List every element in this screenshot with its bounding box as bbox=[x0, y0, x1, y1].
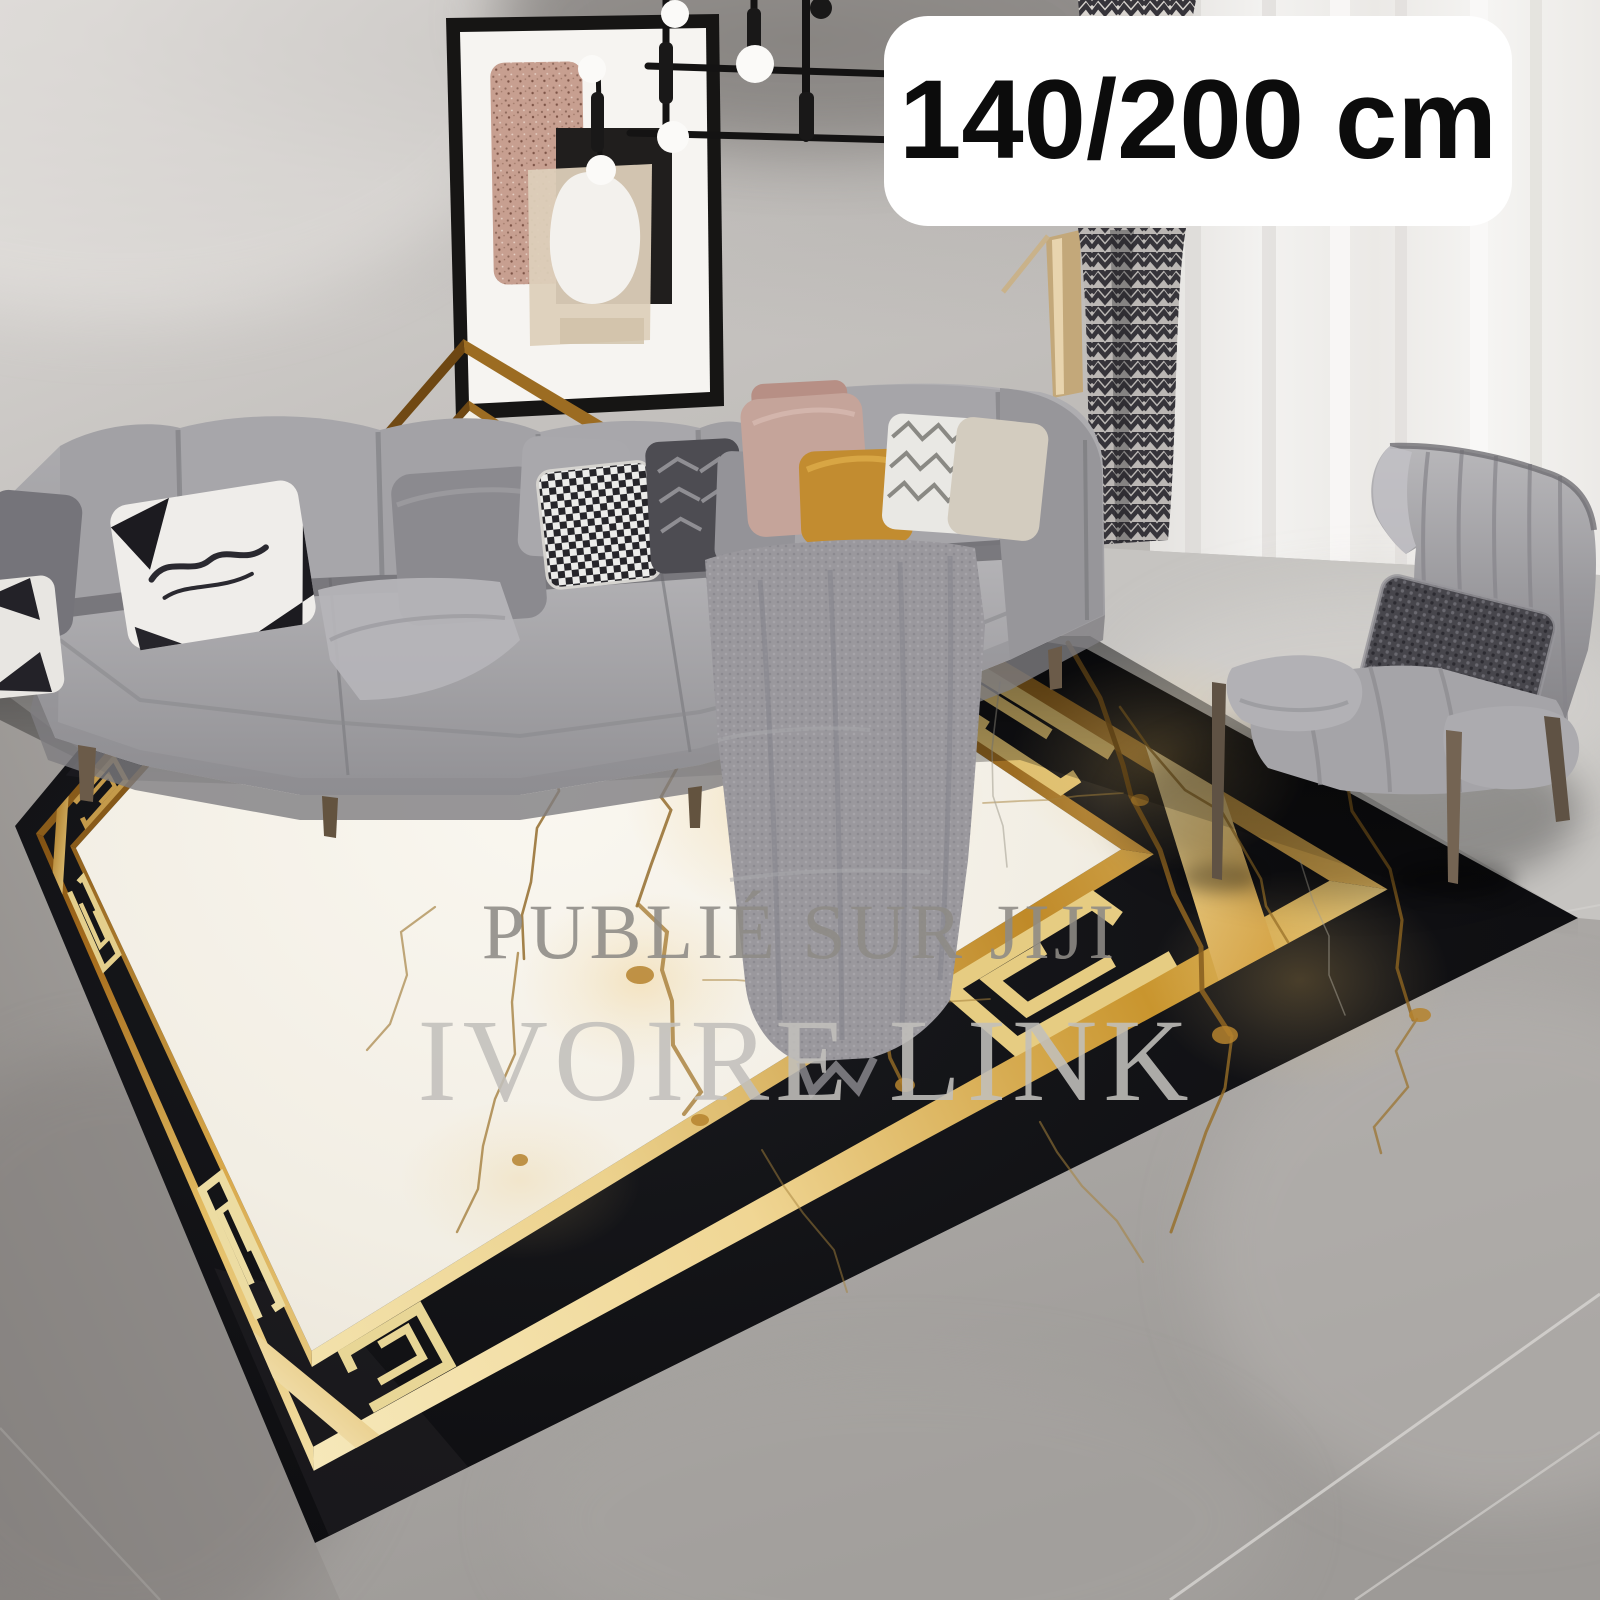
svg-text:PUBLIÉ SUR JIJI: PUBLIÉ SUR JIJI bbox=[482, 888, 1118, 975]
svg-text:140/200 cm: 140/200 cm bbox=[899, 57, 1497, 182]
svg-text:IVOIRE LINK: IVOIRE LINK bbox=[417, 995, 1194, 1126]
